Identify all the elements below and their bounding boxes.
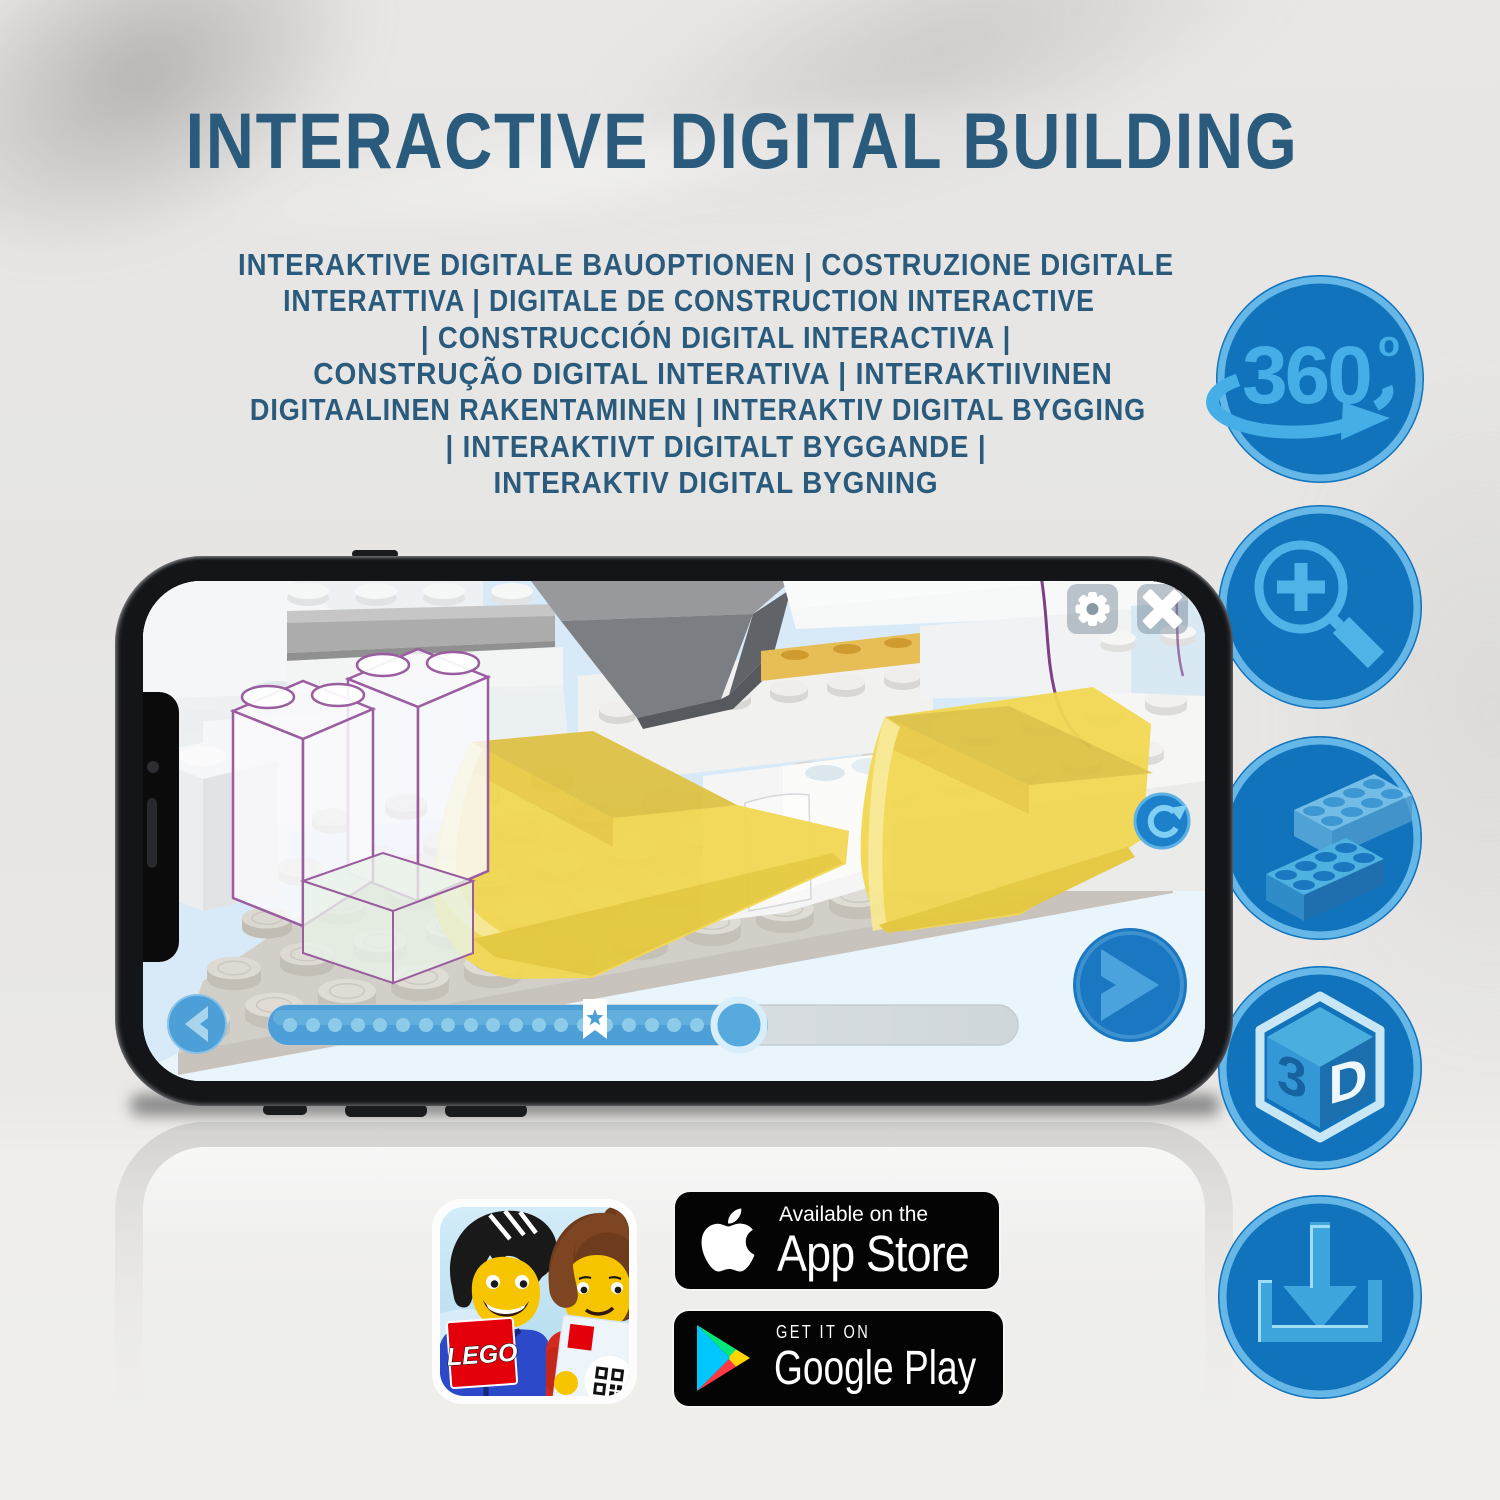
svg-text:3: 3 bbox=[1277, 1042, 1307, 1111]
svg-text:LEGO: LEGO bbox=[446, 1339, 519, 1372]
svg-text:D: D bbox=[1329, 1044, 1368, 1116]
svg-text:o: o bbox=[1378, 323, 1400, 364]
